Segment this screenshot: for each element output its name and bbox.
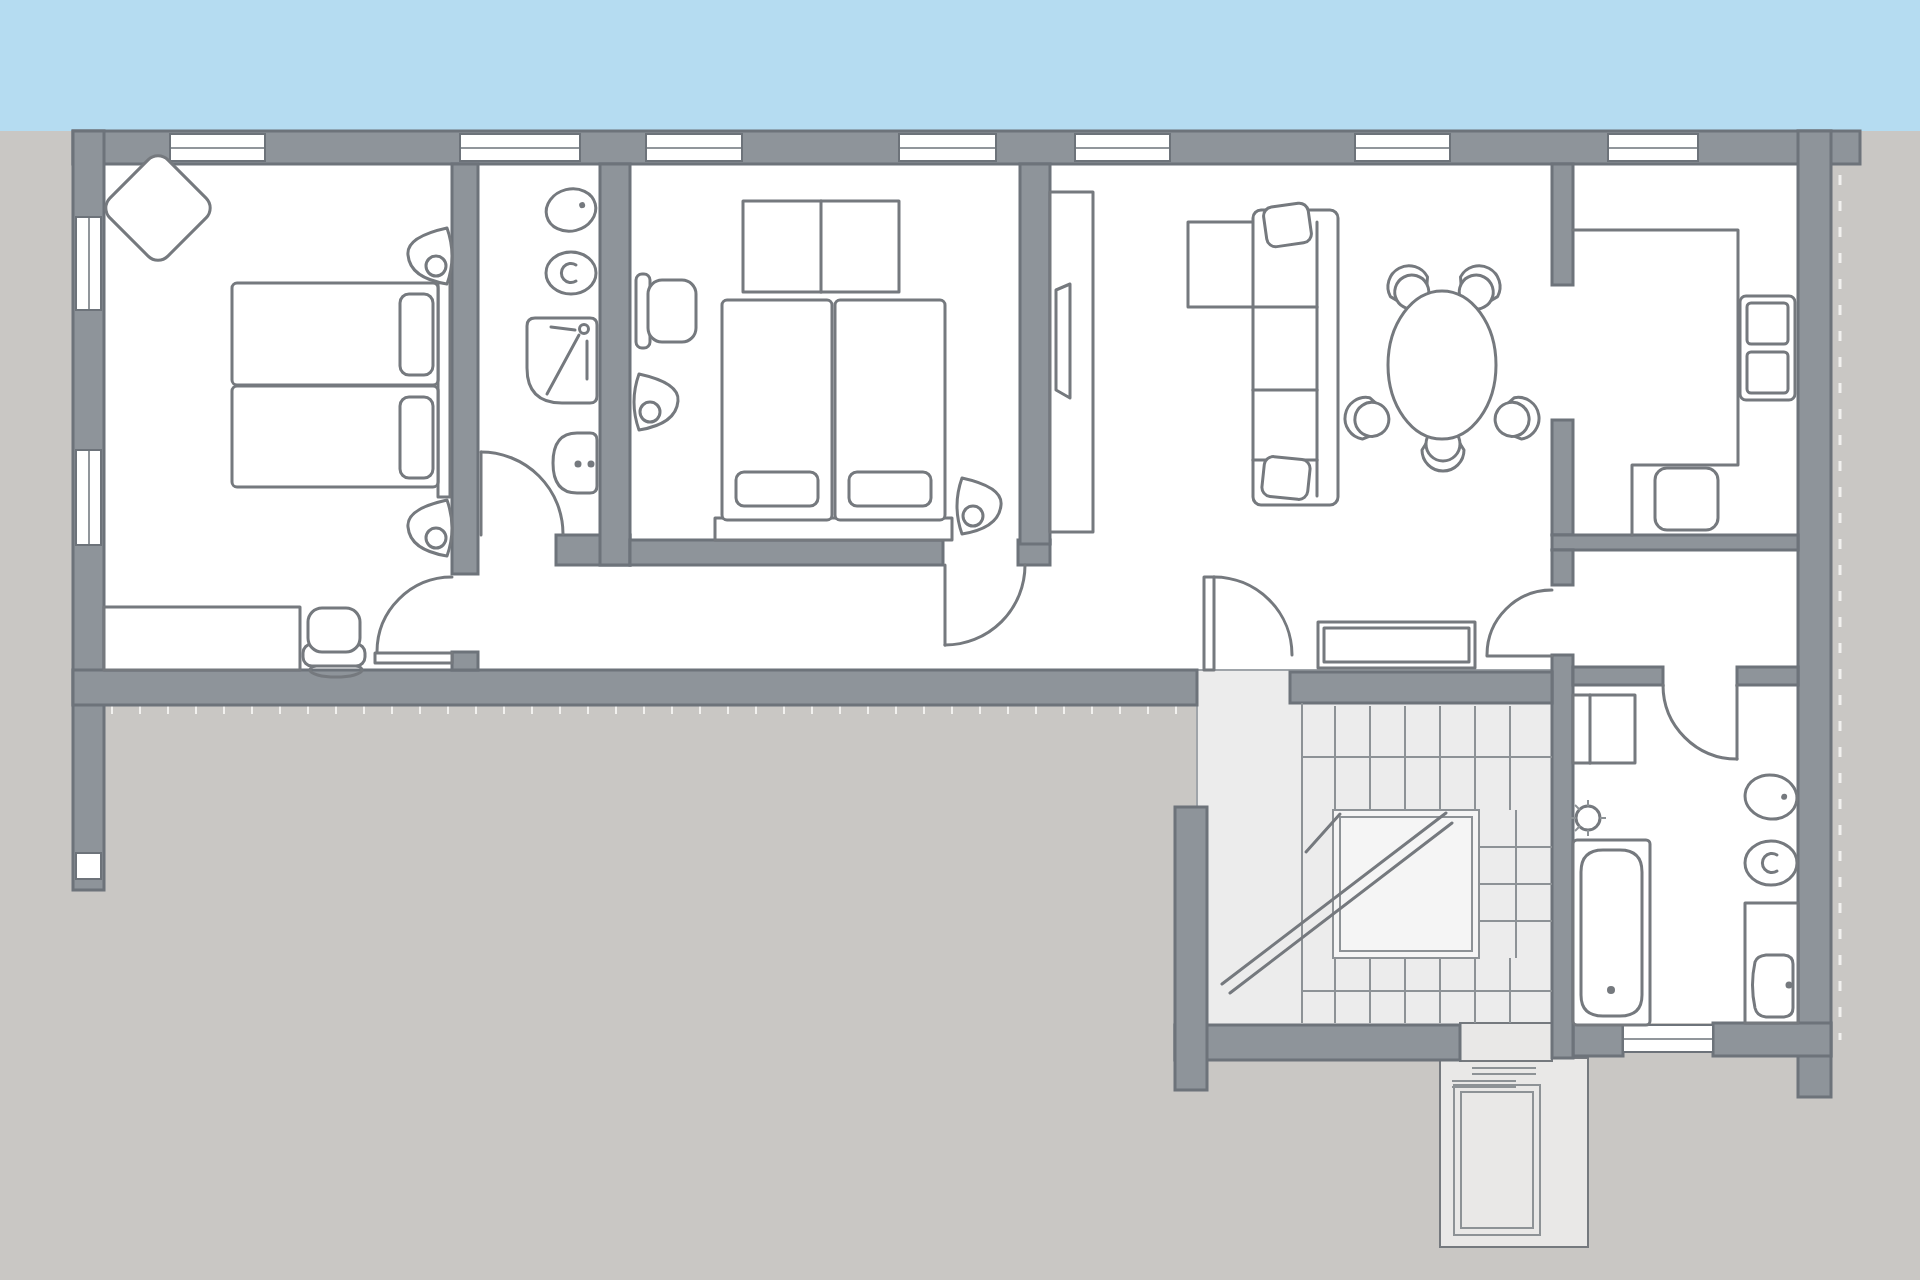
washing-machine — [1573, 695, 1635, 763]
sofa-pillow — [1262, 202, 1312, 248]
hall-east-wall-upper — [1552, 550, 1573, 585]
media-unit — [1050, 192, 1093, 532]
wall-bathroom1-bedroom2 — [600, 164, 630, 565]
office-chair — [303, 608, 365, 677]
elevator-shaft-mouth — [1460, 1023, 1552, 1061]
west-wall-stairwell — [1175, 807, 1207, 1090]
desk — [104, 607, 300, 670]
window — [76, 217, 101, 310]
wall-notch — [76, 853, 101, 879]
twin-bed — [232, 275, 450, 497]
kitchen-south-wall — [1552, 535, 1798, 550]
window — [1355, 134, 1450, 161]
bathtub — [1573, 840, 1650, 1025]
floor-plan-image — [0, 0, 1920, 1280]
sofa-pillow — [1261, 456, 1311, 501]
vanity-sink — [1745, 903, 1798, 1023]
right-exterior-wall — [1798, 131, 1831, 1097]
bedroom2-south-wall — [630, 540, 943, 565]
chair-seat — [648, 280, 696, 342]
wall-bedroom2-living — [1020, 164, 1050, 544]
dining-table — [1388, 291, 1496, 439]
office-chair — [636, 274, 696, 348]
kitchen-stub-north — [1552, 164, 1573, 285]
wall-stub-bedroom1-door — [452, 652, 478, 670]
fridge-oven-column — [1740, 296, 1795, 400]
pillow — [736, 472, 818, 506]
stairwell-north-wall — [1290, 672, 1552, 703]
window — [170, 134, 265, 161]
kitchen-stub-south — [1552, 420, 1573, 535]
bath2-window — [1623, 1025, 1713, 1052]
wall-bedroom1-bathroom1 — [452, 164, 478, 574]
bed-headboard — [438, 275, 450, 497]
wardrobe — [743, 201, 899, 292]
south-wall-stairwell — [1175, 1025, 1460, 1060]
cooktop — [1655, 468, 1718, 530]
pillow — [400, 294, 433, 375]
console-table — [1318, 622, 1475, 668]
shower — [527, 318, 597, 403]
south-wall-left-wing — [73, 670, 1197, 705]
tv — [1056, 284, 1070, 398]
pillow — [400, 397, 433, 478]
window — [646, 134, 742, 161]
window — [76, 450, 101, 545]
window — [460, 134, 580, 161]
chair-seat — [308, 608, 360, 652]
sky-band — [0, 0, 1920, 131]
hall-east-wall-lower — [1552, 655, 1573, 1058]
floor-plan-svg — [0, 0, 1920, 1280]
pillow — [849, 472, 931, 506]
window — [899, 134, 996, 161]
south-wall-bath2-east — [1713, 1023, 1831, 1056]
bidet — [546, 252, 596, 294]
bath2-north-wall-west — [1573, 667, 1663, 685]
window — [1608, 134, 1698, 161]
washbasin — [553, 433, 597, 493]
double-bed — [715, 300, 952, 540]
south-wall-bath2-west — [1573, 1023, 1623, 1056]
bidet — [1745, 841, 1797, 885]
bath2-north-wall-east — [1737, 667, 1798, 685]
window — [1075, 134, 1170, 161]
